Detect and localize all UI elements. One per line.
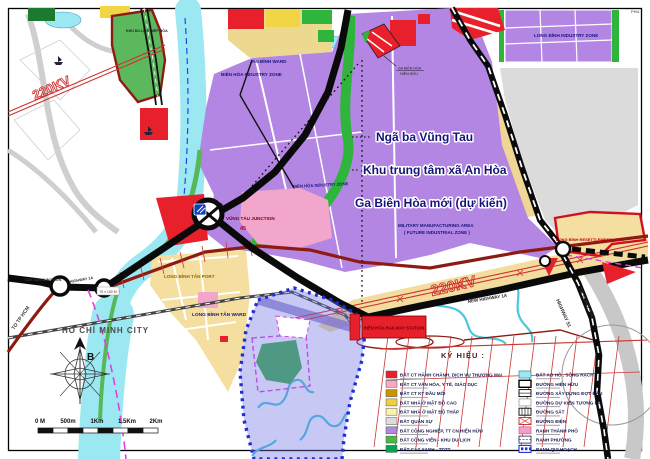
map-canvas: BIÊN HÒA RAILWAY STATION 220KV 220KV Ngã… xyxy=(0,0,650,459)
callout-ga-bien-hoa-moi: Ga Biên Hòa mới (dự kiến) xyxy=(355,196,507,210)
label-military-1: MILITARY MANUFACTURING AREA xyxy=(398,223,474,228)
label-vt-junction: VŨNG TÀU JUNCTION xyxy=(226,215,275,221)
label-tanvan-junction: TÂN VẠN JUNCTION xyxy=(24,277,62,282)
legend-label: ĐƯỜNG HIỆN HỮU xyxy=(536,380,579,387)
legend-label: RANH THÀNH PHỐ xyxy=(536,427,578,433)
legend-title: KÝ HIỆU : xyxy=(441,351,485,360)
legend-swatch xyxy=(386,445,397,452)
label-phu: PHU xyxy=(631,9,640,14)
label-ga-existing-1: GA BIÊN HÒA xyxy=(398,66,422,71)
legend-label: ĐẤT NHÀ Ở MẬT ĐỘ CAO xyxy=(400,398,457,405)
legend-swatch-road-future xyxy=(519,399,531,406)
legend-swatch-water xyxy=(519,371,531,378)
legend-label: ĐẤT CÂY XANH - TDTT xyxy=(400,446,451,452)
legend-swatch xyxy=(386,418,397,425)
callout-khu-trung-tam: Khu trung tâm xã An Hòa xyxy=(363,163,507,177)
railway-station-label: BIÊN HÒA RAILWAY STATION xyxy=(364,326,425,331)
legend-swatch xyxy=(386,380,397,387)
label-lb-industry: LONG BÌNH INDUSTRY ZONE xyxy=(534,31,598,38)
legend-swatch xyxy=(386,427,397,434)
legend-label: ĐƯỜNG ĐIỆN xyxy=(536,417,567,424)
label-military-2: ( FUTURE INDUSTRIAL ZONE ) xyxy=(404,230,470,235)
legend-label: ĐƯỜNG XÂY DỰNG ĐỢT ĐẦU xyxy=(536,389,603,396)
legend-label: ĐẤT CT KT ĐẦU MỐI xyxy=(400,390,445,396)
label-hiep-hoa: KHU DU LỊCH HIỆP HÒA xyxy=(126,28,168,33)
legend-label: ĐƯỜNG SẮT xyxy=(536,408,565,415)
vungtau-junction xyxy=(194,200,222,228)
scale-tick-1: 500m xyxy=(60,419,75,425)
scale-tick-0: 0 M xyxy=(35,419,45,425)
green-strip-east xyxy=(612,10,619,62)
legend-label: ĐẤT CT VĂN HÓA, Y TẾ, GIÁO DỤC xyxy=(400,380,478,387)
legend-label: ĐẤT CÔNG VIÊN - KHU DU LỊCH xyxy=(400,436,471,443)
legend-swatch-road-existing xyxy=(519,380,531,387)
label-bh-industry-1: BIÊN HÒA INDUSTRY ZONE xyxy=(221,70,282,77)
label-resettlement: LONG BÌNH RESETTLEMENT AREA xyxy=(556,237,624,242)
legend-label: ĐẤT CÔNG NGHIỆP, TT CN HIỆN HỮU xyxy=(400,426,484,433)
callout-nga-ba-vung-tau: Ngã ba Vũng Tau xyxy=(376,130,473,144)
compass-north-label: B xyxy=(87,352,94,363)
legend-label: ĐẤT CT HÀNH CHÁNH, DỊCH VỤ THƯƠNG MẠI xyxy=(400,372,502,378)
legend-swatch xyxy=(386,371,397,378)
legend-label: ĐẤT QUÂN SỰ xyxy=(400,418,433,424)
scale-tick-3: 1.5Km xyxy=(118,419,136,425)
legend-label: RANH PHƯỜNG xyxy=(536,436,572,443)
svg-text:70 x 100 M: 70 x 100 M xyxy=(99,290,116,294)
legend-swatch xyxy=(386,436,397,443)
white-patch-planning xyxy=(276,316,310,338)
legend-swatch xyxy=(386,408,397,415)
legend-label: ĐẤT AO HỒ , SÔNG RẠCH xyxy=(536,371,594,378)
legend-label: RANH QUI HOẠCH xyxy=(536,447,578,452)
legend-label: ĐẤT NHÀ Ở MẬT ĐỘ THẤP xyxy=(400,408,459,415)
scale-tick-4: 2Km xyxy=(149,419,162,425)
legend-swatch-city-boundary xyxy=(519,427,531,434)
label-vt-junction-num: 45 xyxy=(240,226,246,232)
legend-swatch xyxy=(386,390,397,397)
label-ga-existing-2: HIỆN HỮU xyxy=(400,71,418,76)
scale-tick-2: 1Km xyxy=(90,419,103,425)
legend-label: ĐƯỜNG DỰ KIẾN TƯƠNG LAI xyxy=(536,398,602,405)
label-anbinh-ward: AN BÌNH WARD xyxy=(252,57,287,64)
legend-swatch xyxy=(386,399,397,406)
planning-map: BIÊN HÒA RAILWAY STATION 220KV 220KV Ngã… xyxy=(0,0,650,459)
label-hcm-city: HỒ CHÍ MINH CITY xyxy=(62,325,149,335)
block-size-note: 70 x 100 M xyxy=(97,287,119,295)
label-lbt-port: LONG BÌNH TÂN PORT xyxy=(164,272,215,279)
